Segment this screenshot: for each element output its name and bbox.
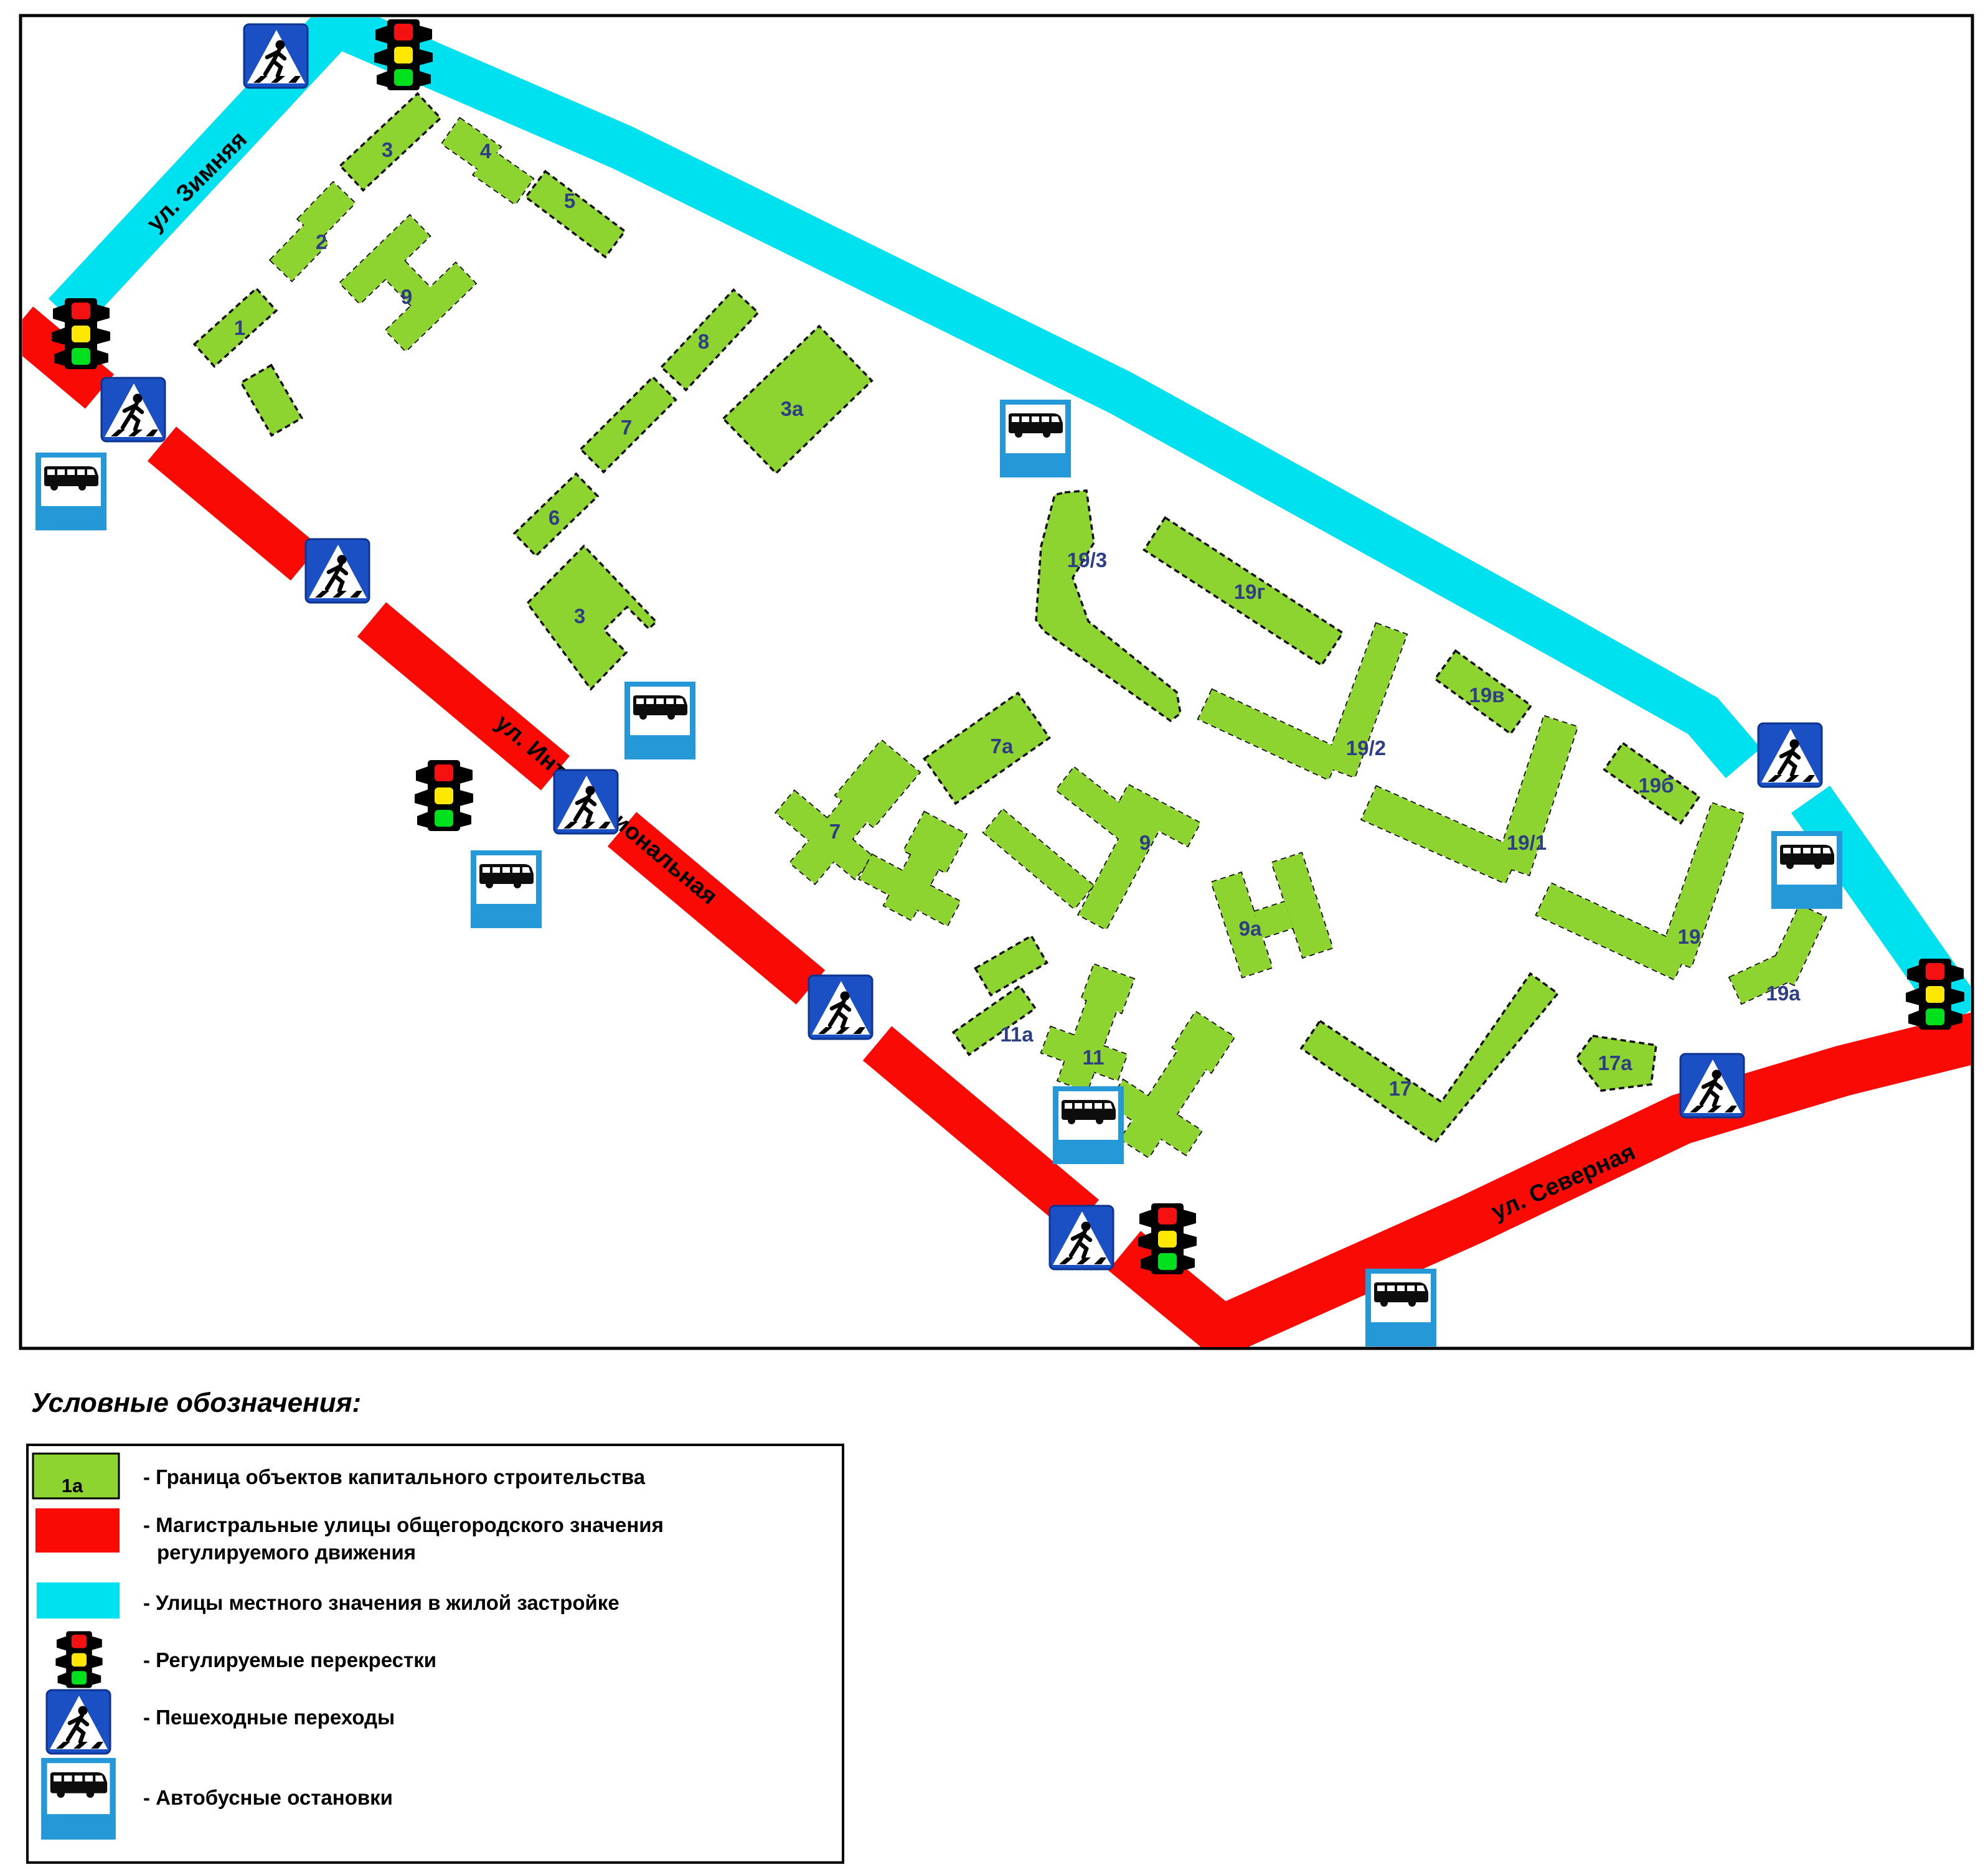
svg-text:3: 3: [574, 604, 585, 627]
svg-text:1а: 1а: [62, 1475, 83, 1497]
svg-text:- Пешеходные переходы: - Пешеходные переходы: [143, 1706, 395, 1729]
svg-text:- Граница объектов капитальног: - Граница объектов капитального строител…: [143, 1465, 646, 1488]
svg-text:6: 6: [549, 506, 560, 529]
svg-text:регулируемого движения: регулируемого движения: [157, 1541, 416, 1564]
svg-text:17а: 17а: [1598, 1051, 1632, 1074]
svg-text:11: 11: [1083, 1046, 1105, 1069]
svg-text:- Регулируемые перекрестки: - Регулируемые перекрестки: [143, 1648, 436, 1671]
svg-text:9: 9: [401, 285, 412, 308]
svg-text:19: 19: [1678, 925, 1701, 948]
svg-text:19г: 19г: [1234, 580, 1265, 603]
svg-text:11а: 11а: [1000, 1023, 1034, 1046]
svg-text:- Улицы местного значения в жи: - Улицы местного значения в жилой застро…: [143, 1591, 619, 1614]
svg-text:19/3: 19/3: [1067, 548, 1107, 571]
svg-text:19в: 19в: [1469, 684, 1505, 707]
svg-text:19б: 19б: [1638, 774, 1674, 797]
svg-text:7: 7: [829, 820, 841, 843]
svg-text:3а: 3а: [781, 397, 804, 420]
svg-text:Условные обозначения:: Условные обозначения:: [31, 1388, 361, 1418]
svg-text:5: 5: [564, 189, 575, 212]
svg-text:9: 9: [1139, 831, 1151, 854]
svg-text:3: 3: [382, 138, 393, 161]
svg-text:4: 4: [480, 139, 492, 162]
svg-text:1: 1: [234, 316, 245, 339]
svg-text:7а: 7а: [991, 735, 1014, 758]
svg-text:- Автобусные остановки: - Автобусные остановки: [143, 1786, 393, 1809]
svg-text:17: 17: [1389, 1077, 1412, 1100]
svg-text:19а: 19а: [1766, 982, 1801, 1005]
svg-text:- Магистральные улицы общегоро: - Магистральные улицы общегородского зна…: [143, 1513, 664, 1536]
svg-text:19/1: 19/1: [1507, 831, 1547, 854]
svg-text:9а: 9а: [1239, 917, 1262, 940]
svg-text:2: 2: [316, 230, 327, 253]
svg-text:19/2: 19/2: [1346, 736, 1386, 759]
svg-text:8: 8: [698, 330, 709, 353]
svg-text:7: 7: [621, 416, 632, 439]
